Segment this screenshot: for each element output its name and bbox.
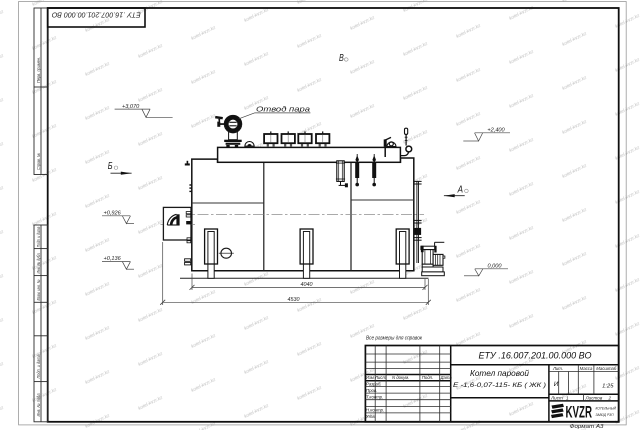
svg-text:kotel-kvzr.kz: kotel-kvzr.kz — [455, 155, 482, 172]
svg-text:ЗАВОД РЭП: ЗАВОД РЭП — [596, 412, 614, 417]
svg-text:kotel-kvzr.kz: kotel-kvzr.kz — [137, 395, 164, 412]
svg-text:Подп. и дата: Подп. и дата — [36, 226, 41, 247]
svg-text:kotel-kvzr.kz: kotel-kvzr.kz — [508, 49, 535, 66]
svg-text:kotel-kvzr.kz: kotel-kvzr.kz — [137, 131, 164, 148]
svg-text:kotel-kvzr.kz: kotel-kvzr.kz — [561, 251, 588, 268]
svg-text:Перв. примен.: Перв. примен. — [36, 57, 41, 83]
svg-text:Разраб.: Разраб. — [366, 381, 382, 386]
svg-text:kotel-kvzr.kz: kotel-kvzr.kz — [402, 0, 429, 14]
svg-text:kotel-kvzr.kz: kotel-kvzr.kz — [296, 33, 323, 50]
svg-text:kotel-kvzr.kz: kotel-kvzr.kz — [402, 305, 429, 322]
svg-text:kotel-kvzr.kz: kotel-kvzr.kz — [561, 75, 588, 92]
svg-text:kotel-kvzr.kz: kotel-kvzr.kz — [402, 349, 429, 366]
svg-text:kotel-kvzr.kz: kotel-kvzr.kz — [190, 333, 217, 350]
svg-text:kotel-kvzr.kz: kotel-kvzr.kz — [190, 289, 217, 306]
svg-text:kotel-kvzr.kz: kotel-kvzr.kz — [508, 181, 535, 198]
svg-text:Лит.: Лит. — [552, 366, 563, 371]
svg-text:+2,400: +2,400 — [487, 127, 505, 133]
svg-text:kotel-kvzr.kz: kotel-kvzr.kz — [455, 419, 482, 430]
svg-text:kotel-kvzr.kz: kotel-kvzr.kz — [349, 15, 376, 32]
svg-text:Изм Лист: Изм Лист — [366, 375, 387, 380]
svg-text:И: И — [554, 381, 559, 388]
svg-text:ЕТУ .16.007.201.00.000 ВО: ЕТУ .16.007.201.00.000 ВО — [52, 11, 141, 20]
svg-text:Взам. инв. №: Взам. инв. № — [36, 279, 41, 300]
svg-text:kotel-kvzr.kz: kotel-kvzr.kz — [190, 377, 217, 394]
svg-text:kotel-kvzr.kz: kotel-kvzr.kz — [0, 361, 5, 378]
svg-text:Н.контр.: Н.контр. — [366, 408, 384, 413]
svg-text:kotel-kvzr.kz: kotel-kvzr.kz — [84, 325, 111, 342]
svg-text:kotel-kvzr.kz: kotel-kvzr.kz — [455, 67, 482, 84]
svg-text:kotel-kvzr.kz: kotel-kvzr.kz — [137, 351, 164, 368]
svg-text:Отвод пара: Отвод пара — [256, 104, 310, 113]
svg-text:kotel-kvzr.kz: kotel-kvzr.kz — [84, 281, 111, 298]
svg-text:kotel-kvzr.kz: kotel-kvzr.kz — [402, 85, 429, 102]
svg-text:kotel-kvzr.kz: kotel-kvzr.kz — [137, 263, 164, 280]
svg-text:kotel-kvzr.kz: kotel-kvzr.kz — [243, 271, 270, 288]
svg-text:kotel-kvzr.kz: kotel-kvzr.kz — [296, 341, 323, 358]
svg-text:Утв.: Утв. — [366, 414, 376, 419]
svg-text:kotel-kvzr.kz: kotel-kvzr.kz — [84, 193, 111, 210]
svg-text:kotel-kvzr.kz: kotel-kvzr.kz — [296, 297, 323, 314]
svg-text:Инв. № подл.: Инв. № подл. — [36, 393, 41, 417]
svg-text:kotel-kvzr.kz: kotel-kvzr.kz — [402, 393, 429, 410]
svg-text:kotel-kvzr.kz: kotel-kvzr.kz — [508, 401, 535, 418]
svg-text:kotel-kvzr.kz: kotel-kvzr.kz — [84, 237, 111, 254]
svg-text:kotel-kvzr.kz: kotel-kvzr.kz — [31, 123, 58, 140]
svg-text:kotel-kvzr.kz: kotel-kvzr.kz — [0, 53, 5, 70]
svg-text:Масса: Масса — [580, 366, 593, 371]
svg-text:Е -1,6-0,07-115- КБ ( ЖК ): Е -1,6-0,07-115- КБ ( ЖК ) — [453, 382, 546, 389]
svg-text:kotel-kvzr.kz: kotel-kvzr.kz — [84, 61, 111, 78]
svg-text:kotel-kvzr.kz: kotel-kvzr.kz — [0, 229, 5, 246]
svg-text:Т.контр.: Т.контр. — [366, 394, 383, 399]
svg-text:kotel-kvzr.kz: kotel-kvzr.kz — [190, 25, 217, 42]
svg-text:kotel-kvzr.kz: kotel-kvzr.kz — [508, 269, 535, 286]
svg-text:kotel-kvzr.kz: kotel-kvzr.kz — [561, 31, 588, 48]
svg-text:kotel-kvzr.kz: kotel-kvzr.kz — [0, 141, 5, 158]
svg-text:kotel-kvzr.kz: kotel-kvzr.kz — [296, 0, 323, 6]
svg-text:kotel-kvzr.kz: kotel-kvzr.kz — [84, 105, 111, 122]
svg-text:kotel-kvzr.kz: kotel-kvzr.kz — [243, 7, 270, 24]
svg-text:Котел паровой: Котел паровой — [470, 369, 530, 378]
svg-text:kotel-kvzr.kz: kotel-kvzr.kz — [137, 87, 164, 104]
svg-text:Справ. №: Справ. № — [36, 152, 41, 170]
svg-text:kotel-kvzr.kz: kotel-kvzr.kz — [296, 385, 323, 402]
svg-text:kotel-kvzr.kz: kotel-kvzr.kz — [243, 51, 270, 68]
svg-text:Подп. и дата: Подп. и дата — [36, 354, 41, 379]
svg-text:kotel-kvzr.kz: kotel-kvzr.kz — [190, 69, 217, 86]
svg-text:Формат А3: Формат А3 — [570, 424, 605, 430]
svg-text:4040: 4040 — [301, 282, 313, 288]
svg-text:kotel-kvzr.kz: kotel-kvzr.kz — [402, 41, 429, 58]
svg-text:kotel-kvzr.kz: kotel-kvzr.kz — [0, 9, 5, 26]
svg-text:ЕТУ .16.007.201.00.000 ВО: ЕТУ .16.007.201.00.000 ВО — [479, 351, 593, 362]
svg-text:kotel-kvzr.kz: kotel-kvzr.kz — [561, 163, 588, 180]
svg-text:Б: Б — [108, 160, 113, 172]
svg-text:kotel-kvzr.kz: kotel-kvzr.kz — [561, 119, 588, 136]
svg-text:N докум.: N докум. — [392, 375, 409, 380]
svg-text:kotel-kvzr.kz: kotel-kvzr.kz — [508, 225, 535, 242]
svg-text:4530: 4530 — [288, 297, 300, 303]
svg-text:kotel-kvzr.kz: kotel-kvzr.kz — [137, 43, 164, 60]
svg-text:Масштаб: Масштаб — [596, 366, 617, 371]
svg-text:kotel-kvzr.kz: kotel-kvzr.kz — [508, 93, 535, 110]
svg-text:1:25: 1:25 — [602, 383, 614, 389]
svg-text:+3,070: +3,070 — [122, 104, 140, 110]
svg-text:kotel-kvzr.kz: kotel-kvzr.kz — [0, 185, 5, 202]
svg-text:kotel-kvzr.kz: kotel-kvzr.kz — [508, 137, 535, 154]
svg-text:kotel-kvzr.kz: kotel-kvzr.kz — [84, 369, 111, 386]
svg-text:А: А — [457, 183, 463, 195]
svg-text:kotel-kvzr.kz: kotel-kvzr.kz — [455, 111, 482, 128]
svg-text:kotel-kvzr.kz: kotel-kvzr.kz — [349, 103, 376, 120]
svg-text:Пров.: Пров. — [366, 388, 377, 393]
svg-text:kotel-kvzr.kz: kotel-kvzr.kz — [137, 219, 164, 236]
svg-text:kotel-kvzr.kz: kotel-kvzr.kz — [455, 243, 482, 260]
svg-text:kotel-kvzr.kz: kotel-kvzr.kz — [243, 315, 270, 332]
svg-text:kotel-kvzr.kz: kotel-kvzr.kz — [243, 403, 270, 420]
svg-text:+0,926: +0,926 — [104, 211, 122, 217]
svg-text:В: В — [339, 53, 344, 64]
svg-text:kotel-kvzr.kz: kotel-kvzr.kz — [455, 23, 482, 40]
svg-text:KVZR: KVZR — [566, 404, 593, 422]
svg-text:Инв. № дубл.: Инв. № дубл. — [36, 253, 41, 274]
svg-text:kotel-kvzr.kz: kotel-kvzr.kz — [455, 199, 482, 216]
svg-text:2: 2 — [608, 395, 612, 400]
svg-text:kotel-kvzr.kz: kotel-kvzr.kz — [455, 287, 482, 304]
svg-text:Лист: Лист — [550, 395, 563, 400]
svg-text:kotel-kvzr.kz: kotel-kvzr.kz — [137, 307, 164, 324]
svg-text:0,000: 0,000 — [488, 263, 503, 269]
svg-text:Листов: Листов — [585, 395, 603, 400]
svg-text:kotel-kvzr.kz: kotel-kvzr.kz — [0, 273, 5, 290]
svg-text:kotel-kvzr.kz: kotel-kvzr.kz — [137, 175, 164, 192]
svg-text:kotel-kvzr.kz: kotel-kvzr.kz — [296, 77, 323, 94]
svg-text:+0,136: +0,136 — [104, 256, 122, 262]
svg-text:kotel-kvzr.kz: kotel-kvzr.kz — [561, 295, 588, 312]
svg-text:kotel-kvzr.kz: kotel-kvzr.kz — [0, 405, 5, 422]
svg-text:1: 1 — [566, 395, 569, 400]
svg-text:kotel-kvzr.kz: kotel-kvzr.kz — [561, 207, 588, 224]
svg-text:kotel-kvzr.kz: kotel-kvzr.kz — [508, 313, 535, 330]
svg-text:kotel-kvzr.kz: kotel-kvzr.kz — [0, 317, 5, 334]
svg-text:Подп.: Подп. — [422, 375, 433, 380]
svg-text:КОТЕЛЬНЫЙ: КОТЕЛЬНЫЙ — [596, 406, 617, 411]
svg-text:kotel-kvzr.kz: kotel-kvzr.kz — [31, 35, 58, 52]
svg-text:kotel-kvzr.kz: kotel-kvzr.kz — [190, 113, 217, 130]
svg-text:kotel-kvzr.kz: kotel-kvzr.kz — [243, 359, 270, 376]
svg-text:Все размеры для справок: Все размеры для справок — [366, 336, 422, 342]
svg-text:kotel-kvzr.kz: kotel-kvzr.kz — [0, 97, 5, 114]
svg-text:Дата: Дата — [440, 375, 453, 380]
svg-text:kotel-kvzr.kz: kotel-kvzr.kz — [349, 59, 376, 76]
